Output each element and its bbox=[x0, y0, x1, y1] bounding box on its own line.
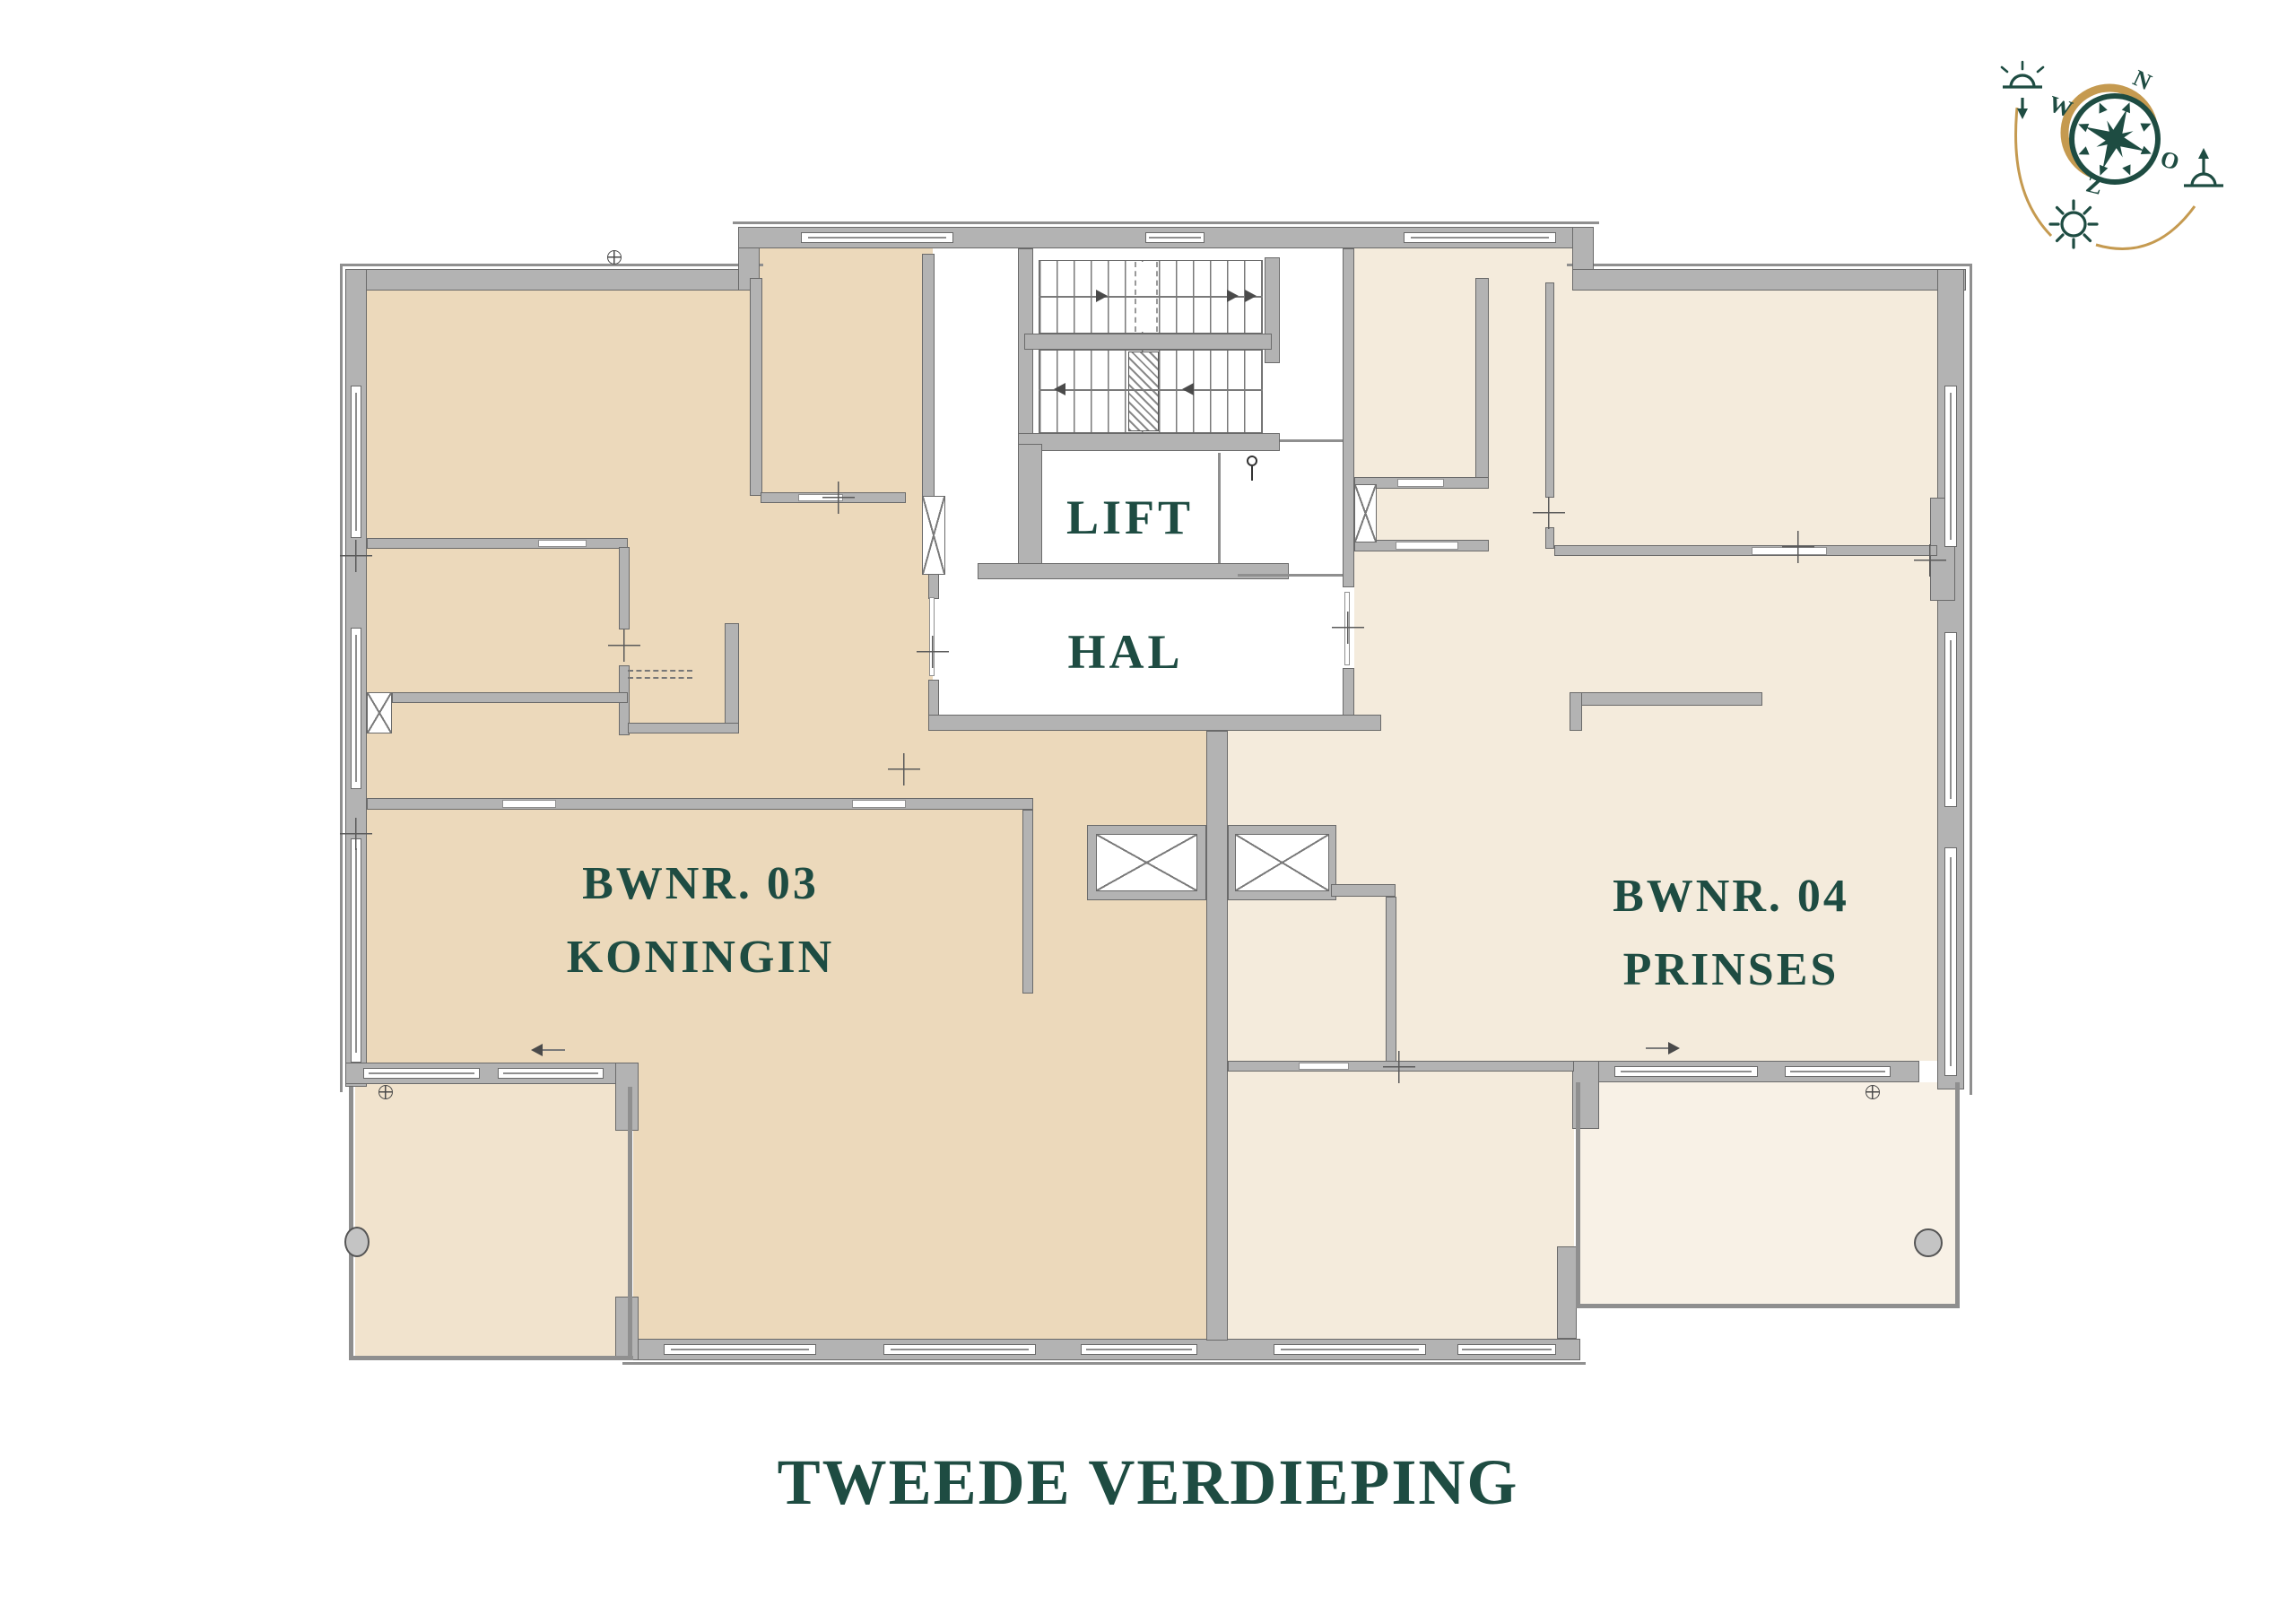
apartment-03-name: KONINGIN bbox=[499, 934, 902, 981]
interior-wall bbox=[1578, 692, 1762, 706]
terrace-left-fill bbox=[355, 1084, 628, 1358]
interior-wall bbox=[1570, 692, 1582, 731]
shaft bbox=[922, 496, 945, 575]
stair-direction-arrow bbox=[1096, 290, 1108, 302]
rainwater-pipe-icon bbox=[378, 1085, 393, 1099]
facade-line bbox=[1567, 264, 1971, 266]
window bbox=[1404, 232, 1556, 243]
door-tick-mark bbox=[608, 629, 640, 662]
terrace-column bbox=[615, 1297, 639, 1360]
facade-line bbox=[1970, 264, 1972, 1095]
window bbox=[1944, 386, 1957, 547]
interior-wall bbox=[750, 278, 762, 496]
interior-wall bbox=[619, 547, 630, 629]
interior-wall bbox=[1475, 278, 1489, 489]
door-tick-mark bbox=[340, 540, 372, 572]
compass-rose: N W O Z bbox=[1996, 13, 2283, 265]
terrace-drain bbox=[1914, 1228, 1943, 1257]
window bbox=[1944, 847, 1957, 1076]
terrace-door-arrow bbox=[531, 1044, 543, 1056]
terrace-column bbox=[1557, 1246, 1577, 1339]
exterior-wall-top-right bbox=[1572, 269, 1966, 291]
sliding-door bbox=[498, 1068, 604, 1079]
window bbox=[1274, 1344, 1426, 1355]
shaft bbox=[367, 692, 392, 733]
rainwater-pipe-icon bbox=[607, 250, 622, 265]
terrace-edge bbox=[628, 1087, 632, 1360]
hal-label: HAL bbox=[1031, 628, 1220, 676]
apartment-03-room-fill bbox=[933, 731, 1206, 1087]
apartment-04-room-fill bbox=[1228, 731, 1574, 1341]
facade-line bbox=[622, 1362, 1586, 1365]
party-wall bbox=[1206, 731, 1228, 1341]
hal-wall bbox=[928, 715, 1381, 731]
terrace-edge bbox=[1955, 1082, 1960, 1308]
terrace-door-arrow bbox=[1668, 1042, 1680, 1055]
sliding-door bbox=[1614, 1066, 1758, 1077]
apartment-04-room-fill bbox=[1574, 291, 1937, 549]
apartment-03-number: BWNR. 03 bbox=[499, 861, 902, 907]
interior-wall bbox=[392, 692, 628, 703]
interior-wall bbox=[922, 254, 935, 498]
door-tick-mark bbox=[1533, 497, 1565, 529]
window bbox=[664, 1344, 816, 1355]
apartment-04-name: PRINSES bbox=[1525, 947, 1937, 994]
door-stop-symbol bbox=[1247, 456, 1257, 466]
shaft bbox=[1354, 484, 1377, 542]
interior-wall bbox=[367, 798, 1033, 810]
stair-direction-arrow bbox=[1227, 290, 1239, 302]
window bbox=[801, 232, 953, 243]
interior-wall bbox=[1331, 884, 1396, 897]
door-opening bbox=[538, 540, 587, 547]
window bbox=[1145, 232, 1205, 243]
sunrise-icon bbox=[2184, 148, 2223, 186]
sliding-door bbox=[1785, 1066, 1891, 1077]
terrace-edge bbox=[349, 1356, 633, 1360]
door-tick-mark bbox=[822, 482, 855, 514]
door-opening bbox=[1397, 479, 1444, 487]
facade-line bbox=[340, 264, 763, 266]
compass-gold-arc bbox=[2016, 108, 2051, 236]
interior-wall bbox=[1545, 527, 1554, 549]
stair-direction-arrow bbox=[1054, 383, 1065, 395]
door-opening bbox=[852, 800, 906, 808]
door-tick-mark bbox=[888, 753, 920, 785]
exterior-wall-top-left bbox=[345, 269, 758, 291]
window bbox=[883, 1344, 1036, 1355]
door-tick-mark bbox=[340, 818, 372, 850]
interior-glass-line bbox=[1238, 574, 1343, 577]
terrace-drain bbox=[344, 1227, 370, 1257]
apartment-04-room-fill bbox=[1354, 248, 1574, 731]
sunset-icon bbox=[2002, 62, 2043, 119]
apartment-04-number: BWNR. 04 bbox=[1525, 873, 1937, 920]
door-tick-mark bbox=[1782, 531, 1814, 563]
stair-walkline bbox=[1039, 389, 1263, 391]
interior-wall bbox=[628, 723, 739, 733]
interior-wall bbox=[1022, 810, 1033, 994]
door-tick-mark bbox=[1332, 612, 1364, 644]
lift-wall bbox=[1018, 444, 1042, 578]
lift-label: LIFT bbox=[1040, 493, 1220, 542]
closet-symbol bbox=[628, 670, 692, 679]
stair-direction-arrow bbox=[1245, 290, 1257, 302]
door-opening bbox=[1299, 1063, 1349, 1070]
shaft bbox=[1096, 834, 1197, 891]
terrace-column bbox=[615, 1063, 639, 1131]
page-title: TWEEDE VERDIEPING bbox=[0, 1445, 2296, 1520]
stair-landing bbox=[1024, 334, 1272, 350]
rainwater-pipe-icon bbox=[1865, 1085, 1880, 1099]
terrace-edge bbox=[1576, 1082, 1580, 1304]
door-tick-mark bbox=[1914, 544, 1946, 577]
stair-direction-arrow bbox=[1182, 383, 1194, 395]
interior-wall bbox=[1554, 545, 1937, 556]
shaft bbox=[1235, 834, 1329, 891]
core-wall bbox=[1018, 433, 1280, 451]
window bbox=[1944, 632, 1957, 807]
apartment-03-label: BWNR. 03 KONINGIN bbox=[499, 861, 902, 981]
interior-glass-line bbox=[1280, 439, 1343, 442]
floorplan-page: { "title": "TWEEDE VERDIEPING", "core": … bbox=[0, 0, 2296, 1623]
sliding-door bbox=[363, 1068, 480, 1079]
window bbox=[1457, 1344, 1556, 1355]
door-tick-mark bbox=[917, 636, 949, 668]
window bbox=[1081, 1344, 1197, 1355]
interior-wall bbox=[725, 623, 739, 733]
window bbox=[351, 628, 361, 789]
window bbox=[351, 386, 361, 538]
terrace-edge bbox=[1576, 1304, 1960, 1308]
terrace-right-fill bbox=[1576, 1082, 1957, 1304]
facade-line bbox=[340, 264, 343, 1092]
door-opening bbox=[502, 800, 556, 808]
interior-wall bbox=[1386, 897, 1396, 1063]
compass-gold-arc bbox=[2096, 206, 2195, 248]
facade-line bbox=[733, 221, 1599, 224]
door-stop-symbol bbox=[1251, 466, 1253, 481]
apartment-04-label: BWNR. 04 PRINSES bbox=[1525, 873, 1937, 994]
compass-east-label: O bbox=[2158, 145, 2182, 175]
sliding-door bbox=[1396, 542, 1458, 550]
sun-icon bbox=[2050, 201, 2097, 247]
terrace-edge bbox=[349, 1087, 353, 1360]
interior-wall bbox=[367, 538, 628, 549]
interior-wall bbox=[1545, 282, 1554, 498]
window bbox=[351, 838, 361, 1063]
core-wall bbox=[1343, 248, 1354, 587]
lift-wall bbox=[978, 563, 1289, 579]
stair-newel bbox=[1128, 352, 1159, 431]
apartment-03-room-fill bbox=[633, 1063, 1206, 1351]
door-tick-mark bbox=[1383, 1051, 1415, 1083]
